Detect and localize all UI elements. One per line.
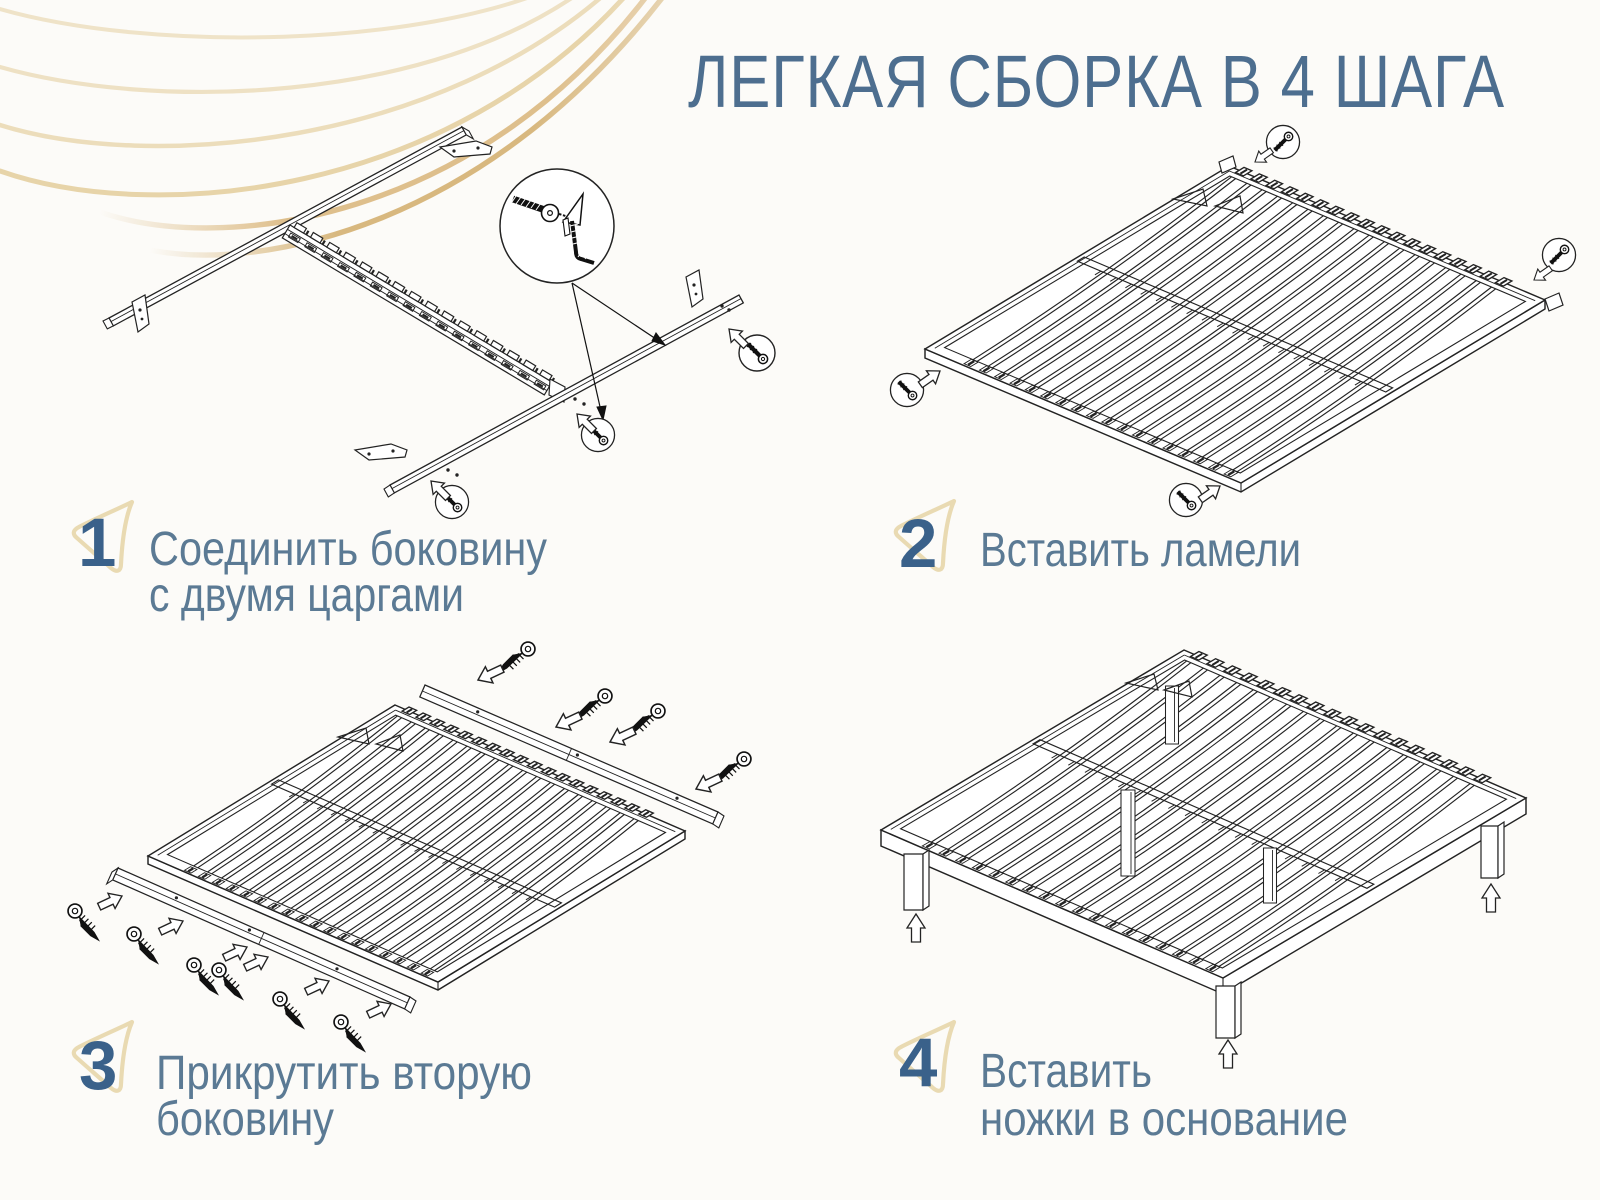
svg-text:2: 2	[899, 505, 937, 582]
svg-text:1: 1	[78, 504, 116, 581]
svg-text:боковину: боковину	[156, 1093, 334, 1146]
svg-text:4: 4	[899, 1024, 937, 1101]
svg-text:Вставить ламели: Вставить ламели	[980, 524, 1301, 577]
svg-text:3: 3	[79, 1027, 117, 1104]
svg-text:с двумя царгами: с двумя царгами	[149, 569, 464, 622]
svg-text:ножки в основание: ножки в основание	[980, 1093, 1348, 1146]
svg-text:ЛЕГКАЯ СБОРКА В 4 ШАГА: ЛЕГКАЯ СБОРКА В 4 ШАГА	[688, 40, 1505, 123]
svg-text:Вставить: Вставить	[980, 1045, 1152, 1098]
